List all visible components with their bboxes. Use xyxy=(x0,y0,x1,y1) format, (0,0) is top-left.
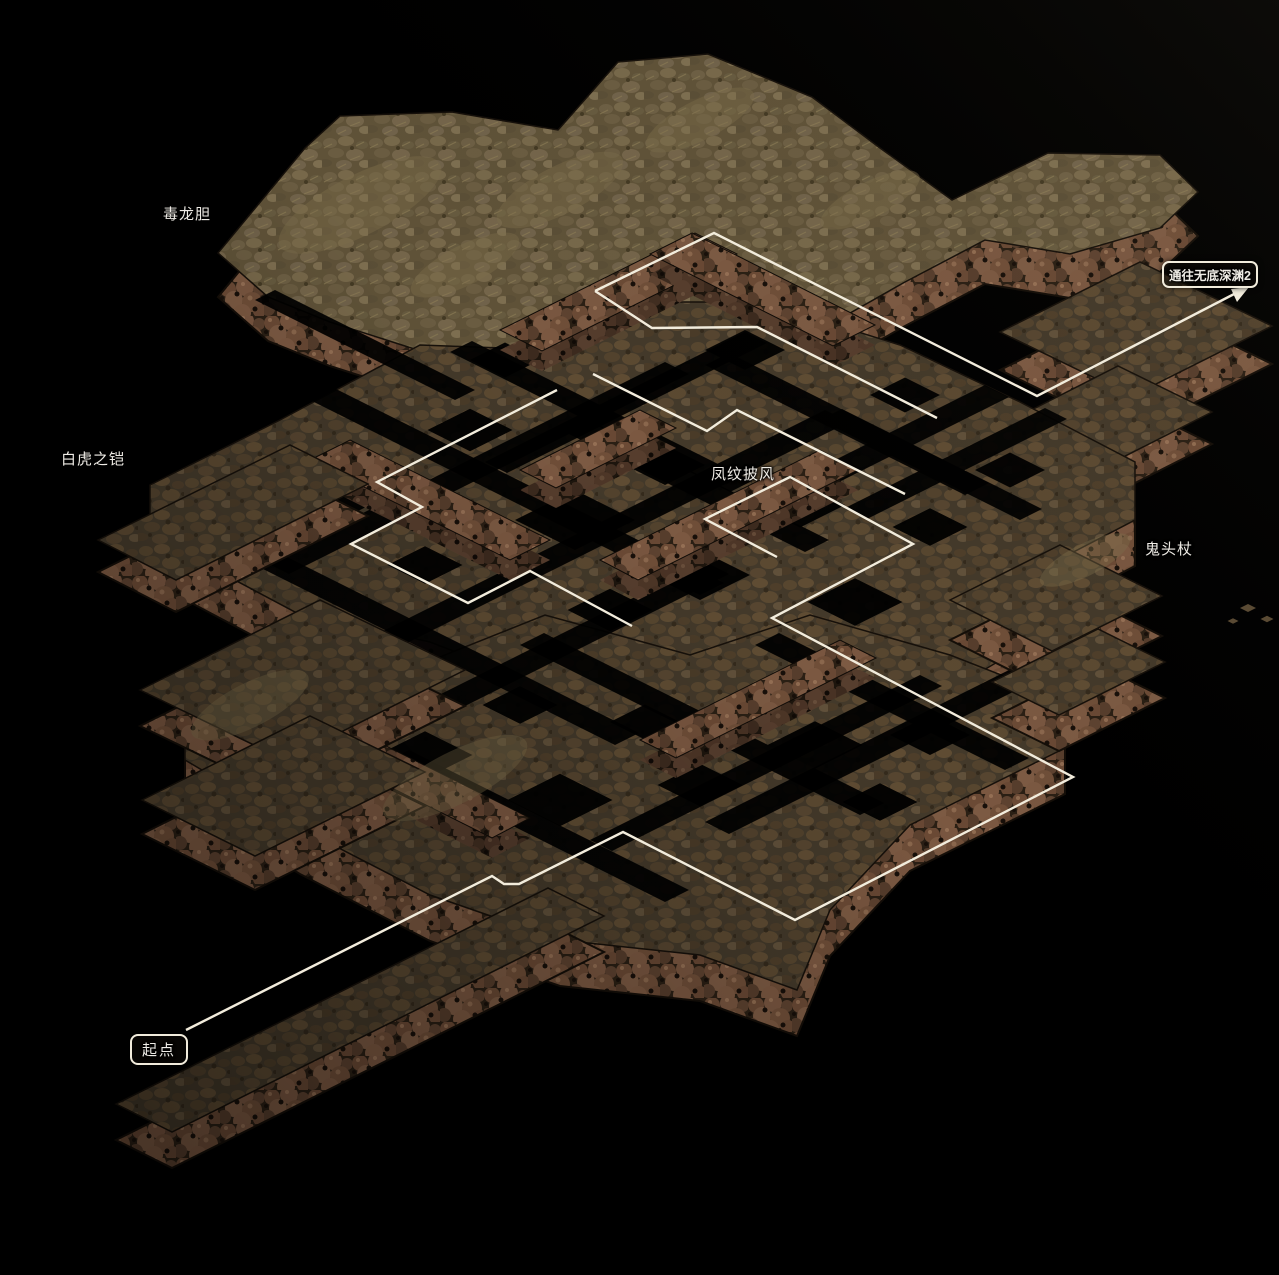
terrain-layer xyxy=(0,0,1279,1275)
map-canvas xyxy=(0,0,1279,1275)
dungeon-map: 毒龙胆白虎之铠凤纹披风鬼头杖起点通往无底深渊2 xyxy=(0,0,1279,1275)
